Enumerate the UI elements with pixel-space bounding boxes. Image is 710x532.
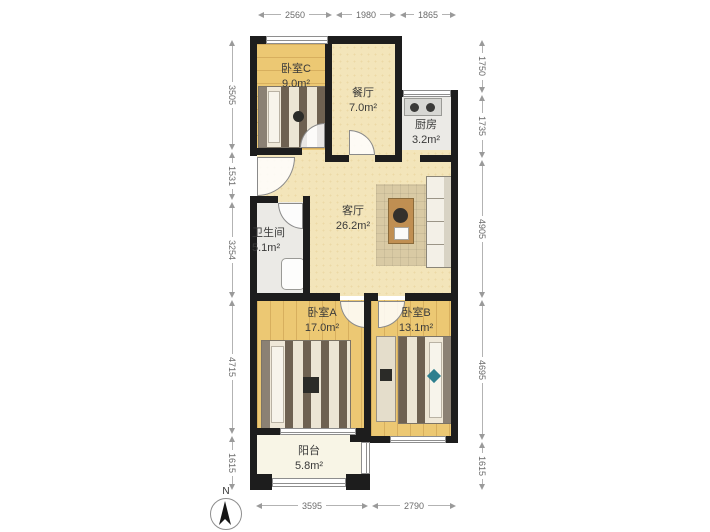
bed-headboard bbox=[259, 87, 267, 147]
window-bedroom-b bbox=[390, 436, 446, 443]
entrance-opening bbox=[250, 156, 257, 196]
bed-bedroom-b bbox=[398, 336, 452, 424]
dimension-top-1: 2560 bbox=[258, 9, 332, 20]
room-label-bedroom-c: 卧室C9.0m² bbox=[260, 62, 332, 92]
dimension-top-2: 1980 bbox=[336, 9, 396, 20]
dimension-right-1: 1750 bbox=[476, 40, 488, 93]
dimension-top-3: 1865 bbox=[400, 9, 456, 20]
dimension-left-2: 1531 bbox=[226, 152, 238, 200]
wall-balcony-corner bbox=[346, 474, 370, 490]
window-balcony-right bbox=[361, 442, 370, 474]
window-balcony-bottom bbox=[272, 478, 346, 487]
wall-bathroom-top bbox=[250, 196, 278, 203]
wall-bedrooms-top bbox=[250, 293, 340, 301]
bed-cushion bbox=[293, 111, 304, 122]
room-label-bedroom-a: 卧室A17.0m² bbox=[286, 306, 358, 336]
table-tray bbox=[394, 227, 409, 240]
window-bedroom-c bbox=[266, 36, 328, 44]
wall-bedroomA-bottom bbox=[250, 428, 280, 435]
room-label-bathroom: 卫生间5.1m² bbox=[252, 226, 308, 256]
wall-dining-bottom bbox=[375, 155, 398, 162]
sofa-seam bbox=[427, 198, 444, 199]
compass-ring bbox=[210, 498, 242, 530]
wall-bedroomA-bedroomB bbox=[364, 293, 371, 443]
dimension-right-3: 4905 bbox=[476, 160, 488, 298]
sofa-seam bbox=[427, 221, 444, 222]
room-label-bedroom-b: 卧室B13.1m² bbox=[380, 306, 452, 336]
stove bbox=[404, 98, 442, 116]
bed-pillow bbox=[271, 346, 284, 423]
floor-plan: 卧室C9.0m² 餐厅7.0m² 厨房3.2m² 客厅26.2m² 卫生间5.1… bbox=[0, 0, 710, 532]
dimension-left-5: 1615 bbox=[226, 436, 238, 490]
window-bedroomA-balcony bbox=[280, 428, 356, 435]
bed-bedroom-a bbox=[261, 340, 351, 429]
dimension-right-2: 1735 bbox=[476, 95, 488, 158]
table-decor bbox=[393, 208, 408, 223]
wardrobe-decor bbox=[380, 369, 392, 381]
wall-bedroomB-bottom bbox=[446, 436, 458, 443]
dimension-right-4: 4695 bbox=[476, 300, 488, 440]
compass-needle bbox=[211, 499, 239, 527]
wall-balcony-corner bbox=[250, 474, 272, 490]
bed-headboard bbox=[262, 341, 270, 428]
room-label-living: 客厅26.2m² bbox=[318, 204, 388, 234]
sofa-back bbox=[444, 177, 451, 267]
bed-tv-tray bbox=[303, 377, 319, 393]
bed-headboard bbox=[443, 337, 451, 423]
sofa bbox=[426, 176, 452, 268]
dimension-bottom-1: 3595 bbox=[256, 500, 368, 511]
wall-kitchen-bottom bbox=[420, 155, 458, 162]
wall-dining-bottom bbox=[325, 155, 349, 162]
room-label-dining: 餐厅7.0m² bbox=[330, 86, 396, 116]
bed-pillow bbox=[268, 91, 280, 143]
wardrobe-bedroom-b bbox=[376, 336, 396, 422]
dimension-bottom-2: 2790 bbox=[372, 500, 456, 511]
wall-bedrooms-top bbox=[405, 293, 458, 301]
room-label-kitchen: 厨房3.2m² bbox=[398, 118, 454, 148]
bed-duvet bbox=[399, 337, 429, 423]
dimension-left-4: 4715 bbox=[226, 300, 238, 434]
wall-bedroomC-bottom bbox=[250, 148, 302, 155]
dimension-right-5: 1615 bbox=[476, 442, 488, 490]
dimension-left-3: 3254 bbox=[226, 202, 238, 298]
window-kitchen bbox=[403, 90, 451, 97]
bathtub bbox=[281, 258, 305, 290]
compass-north-icon: N bbox=[204, 486, 248, 530]
dimension-left-1: 3505 bbox=[226, 40, 238, 150]
coffee-table bbox=[388, 198, 414, 244]
compass-north-label: N bbox=[204, 486, 248, 497]
stove-burner bbox=[426, 103, 435, 112]
sofa-seam bbox=[427, 244, 444, 245]
wall-left bbox=[250, 36, 257, 490]
stove-burner bbox=[410, 103, 419, 112]
room-label-balcony: 阳台5.8m² bbox=[272, 444, 346, 474]
